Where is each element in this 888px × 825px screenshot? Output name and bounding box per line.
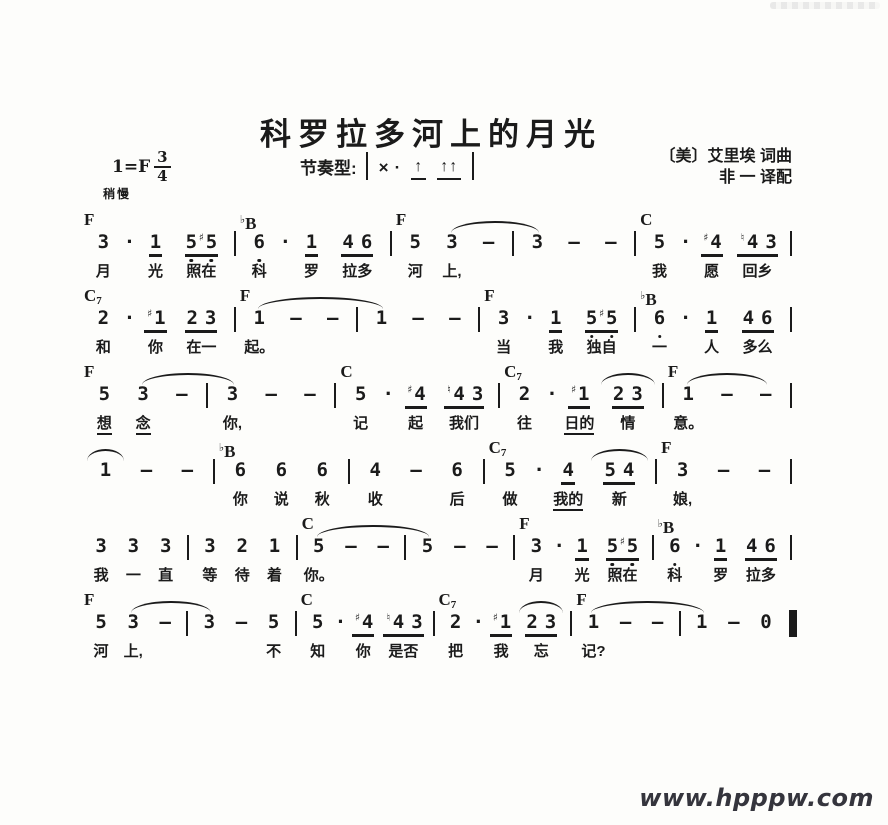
note-number: —: [409, 458, 422, 485]
lyric: 着: [267, 566, 282, 587]
note-number: —: [758, 458, 771, 485]
note-token: 6说: [261, 458, 302, 511]
note-token: —: [718, 610, 750, 663]
lyric: 拉多: [342, 262, 372, 283]
accidental-icon: ♯: [570, 384, 577, 395]
lyric: [476, 642, 480, 663]
note-number: 1: [549, 306, 562, 333]
note-number: 3: [97, 230, 110, 257]
note-number: —: [448, 306, 461, 333]
note-token: ♮43是否: [379, 610, 427, 663]
music-system: 1 — — ♭B6你6说6秋4收— 6后C75做· 4我的54新F3娘,— —: [85, 438, 797, 511]
note-number: —: [727, 610, 740, 637]
note-token: 5不: [258, 610, 290, 663]
note-number: ·: [532, 458, 545, 485]
note-token: —: [744, 458, 785, 511]
note-number: 5♯5: [606, 534, 640, 561]
lyric: 起: [408, 414, 423, 435]
note-token: 1罗: [704, 534, 736, 587]
chord-symbol: F: [519, 515, 529, 533]
lyric: 月: [96, 262, 111, 283]
note-token: ·: [678, 306, 693, 359]
note-token: 1: [85, 458, 126, 511]
note-number: ·: [381, 382, 394, 409]
lyric: 河: [94, 642, 109, 663]
note-number: 1: [375, 306, 388, 333]
note-number: —: [265, 382, 278, 409]
note-number: 5: [98, 382, 111, 409]
note-token: —: [609, 610, 641, 663]
note-token: —: [367, 534, 399, 587]
note-number: 3: [226, 382, 239, 409]
note-token: ♯4愿: [693, 230, 730, 283]
note-number: ♮43: [737, 230, 778, 257]
tie-arc: [601, 373, 655, 385]
lyric: 直: [158, 566, 173, 587]
watermark-url: www.hpppw.com: [639, 784, 874, 812]
lyric: 和: [96, 338, 111, 359]
note-number: —: [303, 382, 316, 409]
accidental-icon: ♯: [146, 308, 153, 319]
note-number: 5: [312, 534, 325, 561]
note-token: —: [335, 534, 367, 587]
lyric: 你。: [304, 566, 334, 587]
lyric: 收: [368, 490, 383, 511]
music-system: F5河3上,— 3 — 5不C5知· ♯4你♮43是否C72把· ♯1我23忘F…: [85, 590, 797, 663]
note-token: ·: [278, 230, 293, 283]
note-token: 0: [750, 610, 782, 663]
lyric: 忘: [534, 642, 549, 663]
note-number: 23: [185, 306, 217, 333]
note-number: 2: [449, 610, 462, 637]
note-token: 6后: [437, 458, 478, 511]
note-token: 5♯5独自: [574, 306, 629, 359]
sheet-music-page: 科罗拉多河上的月光 1=F 3 4 节奏型: × · ↑ ↑↑ 〔美〕艾里埃 词…: [0, 0, 888, 825]
lyric: [269, 414, 273, 435]
note-token: ♭B6科: [659, 534, 691, 587]
time-signature: 3 4: [154, 150, 170, 184]
note-token: —: [708, 382, 747, 435]
music-system: F3月· 1光5♯5照在♭B6科· 1罗46拉多F5河3上,— 3 — — C5…: [85, 210, 797, 283]
lyric: 我: [548, 338, 563, 359]
final-barline: [782, 610, 797, 637]
note-token: 46拉多: [330, 230, 385, 283]
note-number: —: [289, 306, 302, 333]
note-token: ♭B6科: [241, 230, 278, 283]
note-token: F5河: [397, 230, 434, 283]
accidental-icon: ♯: [703, 232, 710, 243]
note-token: ♯1我: [485, 610, 517, 663]
note-number: ♯1: [144, 306, 166, 333]
lyric: 不: [266, 642, 281, 663]
note-token: 3我: [85, 534, 117, 587]
chord-symbol: F: [484, 287, 494, 305]
note-number: 2: [97, 306, 110, 333]
lyric: 照在: [186, 262, 216, 283]
note-token: 23在一: [174, 306, 229, 359]
lyric: 情: [620, 414, 635, 435]
note-token: 3上,: [117, 610, 149, 663]
note-number: 5♯5: [185, 230, 219, 257]
chord-symbol: C: [340, 363, 352, 381]
lyric: [725, 414, 729, 435]
lyric: 独自: [587, 338, 617, 359]
lyric: 当: [496, 338, 511, 359]
chord-symbol: F: [668, 363, 678, 381]
lyric: 把: [448, 642, 463, 663]
note-token: —: [149, 610, 181, 663]
lyric: 说: [274, 490, 289, 511]
lyric: [550, 414, 554, 435]
note-token: C5知: [302, 610, 334, 663]
barline: [650, 458, 662, 484]
note-token: —: [592, 230, 629, 283]
lyric: [535, 262, 539, 283]
note-number: —: [140, 458, 153, 485]
lyric: [762, 490, 766, 511]
lyric: [528, 338, 532, 359]
lyric: 秋: [315, 490, 330, 511]
note-number: —: [604, 230, 617, 257]
barline: [201, 382, 213, 408]
note-number: 1: [682, 382, 695, 409]
note-token: ♯4你: [347, 610, 379, 663]
lyric: 我: [652, 262, 667, 283]
note-token: F1记?: [577, 610, 609, 663]
accidental-icon: ♯: [354, 612, 361, 623]
note-token: ♯4起: [396, 382, 435, 435]
note-token: 5: [411, 534, 443, 587]
note-token: —: [126, 458, 167, 511]
note-token: F1意。: [669, 382, 708, 435]
note-number: 54: [603, 458, 635, 485]
note-token: F3月: [85, 230, 122, 283]
note-number: —: [181, 458, 194, 485]
note-number: 1: [575, 534, 588, 561]
lyric: 等: [202, 566, 217, 587]
note-token: 1光: [566, 534, 598, 587]
note-number: 46: [745, 534, 777, 561]
lyric: [163, 642, 167, 663]
lyric: [700, 642, 704, 663]
note-number: 3: [445, 230, 458, 257]
note-token: C72把: [440, 610, 472, 663]
barline: [229, 230, 241, 256]
music-system: 3我3一3直3等2待1着C5你。— — 5 — — F3月· 1光5♯5照在♭B…: [85, 514, 797, 587]
barline: [657, 382, 669, 408]
note-number: 46: [341, 230, 373, 257]
lyric: 记?: [581, 642, 605, 663]
lyric: 念: [136, 414, 151, 435]
note-token: ♯1你: [137, 306, 174, 359]
note-token: —: [252, 382, 291, 435]
lyric: [764, 414, 768, 435]
lyric: [721, 490, 725, 511]
tie-arc: [591, 449, 648, 461]
barline: [507, 230, 519, 256]
note-token: ·: [531, 458, 548, 511]
tie-arc: [131, 601, 210, 613]
lyric: [696, 566, 700, 587]
note-token: —: [396, 458, 437, 511]
note-token: F3月: [520, 534, 552, 587]
note-token: 46拉多: [737, 534, 785, 587]
note-token: ♮43我们: [435, 382, 493, 435]
note-token: 46多么: [730, 306, 785, 359]
note-token: ·: [380, 382, 396, 435]
note-token: 3一: [117, 534, 149, 587]
note-number: 1: [695, 610, 708, 637]
lyric: 月: [529, 566, 544, 587]
note-token: F5河: [85, 610, 117, 663]
barline: [785, 230, 797, 256]
note-token: —: [703, 458, 744, 511]
note-token: ·: [122, 306, 137, 359]
time-signature-numerator: 3: [154, 150, 170, 168]
lyric: 河: [408, 262, 423, 283]
lyric: 我们: [449, 414, 479, 435]
note-number: 5: [653, 230, 666, 257]
note-number: 1: [705, 306, 718, 333]
lyric: 做: [503, 490, 518, 511]
rhythm-barline: [472, 152, 474, 180]
lyric: [127, 262, 131, 283]
barline: [674, 610, 686, 636]
lyric: 回乡: [743, 262, 773, 283]
lyric: 上,: [442, 262, 461, 283]
barline: [647, 534, 659, 560]
note-token: 4收: [355, 458, 396, 511]
rhythm-dot: ·: [395, 156, 401, 180]
note-token: F1起。: [241, 306, 278, 359]
rhythm-pattern-notation: × · ↑ ↑↑: [366, 152, 475, 180]
lyric: 我的: [553, 490, 583, 511]
note-number: 5: [267, 610, 280, 637]
note-token: ·: [122, 230, 137, 283]
note-number: 3: [676, 458, 689, 485]
note-number: 6: [653, 306, 666, 333]
lyric: [453, 338, 457, 359]
note-number: —: [485, 534, 498, 561]
note-token: 3上,: [434, 230, 471, 283]
note-number: —: [175, 382, 188, 409]
note-number: —: [717, 458, 730, 485]
note-token: 1光: [137, 230, 174, 283]
barline: [473, 306, 485, 332]
note-number: 23: [525, 610, 557, 637]
accidental-icon: ♯: [619, 536, 626, 547]
tie-arc: [519, 601, 563, 613]
lyric: 罗: [304, 262, 319, 283]
lyric: 一: [652, 338, 667, 359]
note-number: —: [411, 306, 424, 333]
note-token: F3娘,: [662, 458, 703, 511]
note-number: ♮43: [383, 610, 424, 637]
lyric: 拉多: [746, 566, 776, 587]
note-number: 6: [275, 458, 288, 485]
lyric: 你: [356, 642, 371, 663]
note-token: 3念: [124, 382, 163, 435]
music-systems: F3月· 1光5♯5照在♭B6科· 1罗46拉多F5河3上,— 3 — — C5…: [85, 210, 797, 666]
note-token: —: [225, 610, 257, 663]
barline: [329, 382, 341, 408]
rhythm-pattern-label: 节奏型:: [300, 154, 357, 179]
tempo-marking: 稍慢: [103, 185, 131, 202]
lyric: [416, 338, 420, 359]
lyric: [557, 566, 561, 587]
lyric: [732, 642, 736, 663]
scan-smudge: [770, 2, 880, 9]
chord-symbol: C: [301, 591, 313, 609]
lyric: 待: [235, 566, 250, 587]
lyric: 人: [704, 338, 719, 359]
lyric: [764, 642, 768, 663]
note-number: 3: [127, 534, 140, 561]
note-number: —: [759, 382, 772, 409]
note-token: 3等: [194, 534, 226, 587]
note-token: ·: [678, 230, 693, 283]
note-token: 1: [363, 306, 400, 359]
lyric: 在一: [186, 338, 216, 359]
note-number: —: [377, 534, 390, 561]
accidental-icon: ♯: [492, 612, 499, 623]
lyric: 光: [148, 262, 163, 283]
note-token: 5♯5照在: [598, 534, 646, 587]
note-number: 3: [531, 230, 544, 257]
chord-symbol: ♭B: [219, 439, 236, 461]
lyric: [381, 566, 385, 587]
lyric: [180, 414, 184, 435]
lyric: [207, 642, 211, 663]
lyric: 娘,: [673, 490, 692, 511]
note-number: 4: [561, 458, 574, 485]
note-token: ·: [544, 382, 560, 435]
note-number: ♯1: [568, 382, 590, 409]
note-token: —: [470, 230, 507, 283]
note-number: 5: [421, 534, 434, 561]
lyric: [349, 566, 353, 587]
barline: [629, 230, 641, 256]
note-number: 6: [668, 534, 681, 561]
chord-symbol: F: [240, 287, 250, 305]
chord-symbol: F: [576, 591, 586, 609]
note-number: 1: [305, 230, 318, 257]
note-token: ·: [552, 534, 566, 587]
rhythm-barline: [366, 152, 368, 180]
lyric: [623, 642, 627, 663]
lyric: [127, 338, 131, 359]
note-number: —: [720, 382, 733, 409]
note-number: —: [567, 230, 580, 257]
note-token: —: [162, 382, 201, 435]
note-number: ·: [123, 306, 136, 333]
note-token: ♮43回乡: [730, 230, 785, 283]
lyric: [103, 490, 107, 511]
lyric: 是否: [388, 642, 418, 663]
translator-credit: 非 一 译配: [660, 167, 792, 188]
barline: [385, 230, 397, 256]
note-token: 3你,: [213, 382, 252, 435]
note-number: —: [453, 534, 466, 561]
note-number: —: [159, 610, 172, 637]
music-system: F5想3念— 3你,— — C5记· ♯4起♮43我们C72往· ♯1日的23情…: [85, 362, 797, 435]
accidental-icon: ♯: [598, 308, 605, 319]
note-token: C5记: [341, 382, 380, 435]
lyric: 想: [97, 414, 112, 435]
note-number: 3: [94, 534, 107, 561]
note-number: 2: [518, 382, 531, 409]
lyric: [490, 566, 494, 587]
lyric: 照在: [607, 566, 637, 587]
barline: [208, 458, 220, 484]
rhythm-pattern: 节奏型: × · ↑ ↑↑: [300, 152, 474, 180]
lyric: 一: [126, 566, 141, 587]
lyric: 你,: [223, 414, 242, 435]
note-number: —: [326, 306, 339, 333]
note-token: 1: [686, 610, 718, 663]
barline: [181, 610, 193, 636]
lyric: [331, 338, 335, 359]
lyric: [609, 262, 613, 283]
note-number: 3: [203, 534, 216, 561]
note-token: —: [476, 534, 508, 587]
lyric: 知: [310, 642, 325, 663]
lyric: [487, 262, 491, 283]
lyric: [656, 642, 660, 663]
note-number: ♯4: [352, 610, 374, 637]
barline: [785, 534, 797, 560]
chord-symbol: C: [302, 515, 314, 533]
lyric: [684, 262, 688, 283]
note-token: —: [437, 306, 474, 359]
lyric: 科: [252, 262, 267, 283]
note-number: 1: [253, 306, 266, 333]
note-token: 4我的: [548, 458, 589, 511]
lyric: 科: [667, 566, 682, 587]
note-token: —: [400, 306, 437, 359]
note-number: 1: [99, 458, 112, 485]
barline: [291, 534, 303, 560]
note-number: 0: [759, 610, 772, 637]
note-number: 5: [94, 610, 107, 637]
note-token: 1着: [258, 534, 290, 587]
note-number: 6: [253, 230, 266, 257]
note-token: 3直: [150, 534, 182, 587]
note-token: C72和: [85, 306, 122, 359]
note-number: 5♯5: [585, 306, 619, 333]
accidental-icon: ♮: [385, 612, 392, 623]
lyric: 多么: [743, 338, 773, 359]
note-token: 1罗: [293, 230, 330, 283]
composer-credit: 〔美〕艾里埃 词曲: [660, 146, 792, 167]
note-number: ♯4: [701, 230, 723, 257]
lyric: 后: [450, 490, 465, 511]
lyric: 意。: [673, 414, 703, 435]
tie-arc: [451, 221, 540, 233]
note-number: 6: [234, 458, 247, 485]
note-number: ·: [123, 230, 136, 257]
note-number: 5: [354, 382, 367, 409]
chord-symbol: C: [640, 211, 652, 229]
barline: [229, 306, 241, 332]
note-token: 23忘: [517, 610, 565, 663]
lyric: [308, 414, 312, 435]
accidental-icon: ♯: [198, 232, 205, 243]
note-number: 2: [235, 534, 248, 561]
rhythm-x-note: ×: [379, 156, 389, 180]
note-number: 3: [136, 382, 149, 409]
note-token: C5我: [641, 230, 678, 283]
